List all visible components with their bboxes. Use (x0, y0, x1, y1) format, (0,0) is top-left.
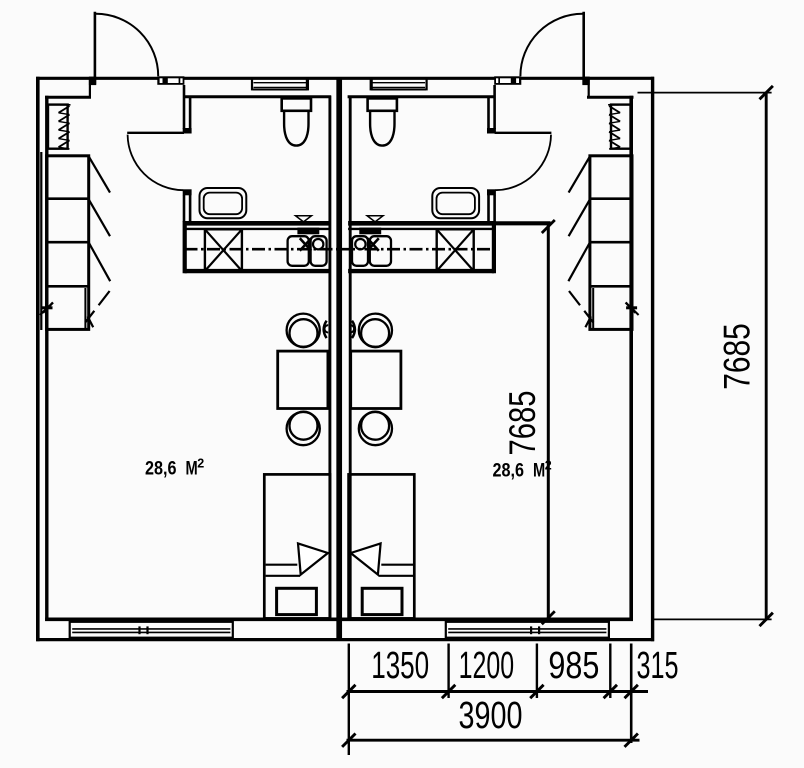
svg-text:1350: 1350 (371, 645, 429, 687)
svg-text:28,6М2: 28,6М2 (145, 457, 204, 480)
svg-text:3900: 3900 (459, 695, 523, 737)
svg-text:315: 315 (637, 645, 679, 687)
svg-text:7685: 7685 (502, 391, 543, 456)
svg-text:985: 985 (548, 645, 599, 687)
svg-text:7685: 7685 (717, 323, 758, 390)
svg-text:1200: 1200 (459, 645, 515, 687)
svg-text:28,6М2: 28,6М2 (493, 458, 552, 481)
